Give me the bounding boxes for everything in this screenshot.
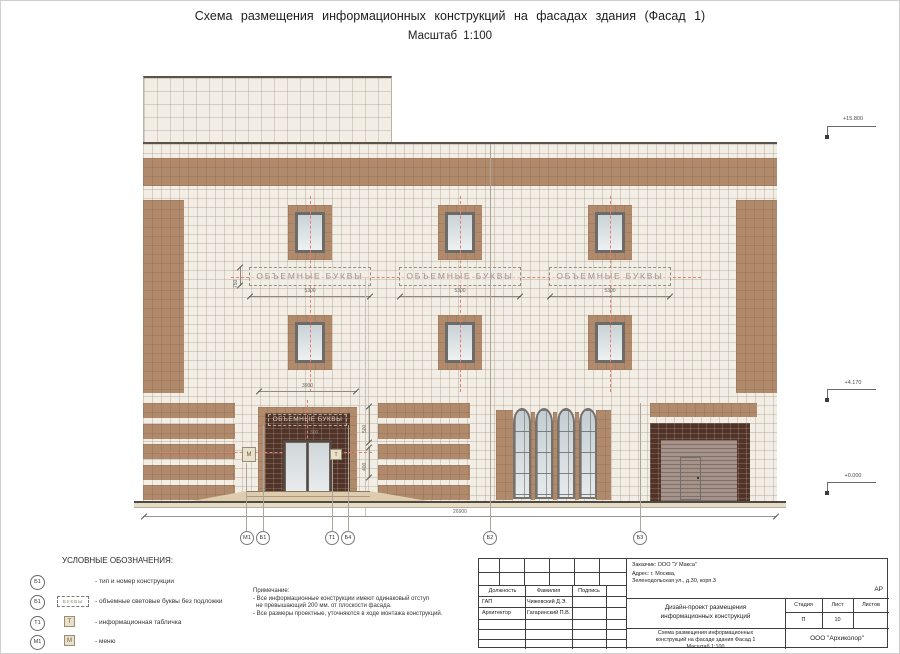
dimension-value: 5300	[399, 288, 521, 294]
pilaster-right	[736, 200, 777, 393]
menu-letter: М	[247, 452, 252, 458]
tb-col-role: Должность	[481, 588, 524, 594]
elevation-mark	[825, 135, 829, 139]
tb-address: Адрес: г. Москва,	[632, 571, 676, 577]
facade-stripe	[378, 465, 470, 480]
tb-subtitle: конструкций на фасаде здания Фасад 1	[626, 637, 785, 643]
sign-volume-letters: ОБЪЕМНЫЕ БУКВЫ	[549, 267, 671, 286]
tb-stage-label: Стадия	[785, 602, 822, 608]
sign-label: ОБЪЕМНЫЕ БУКВЫ	[273, 416, 343, 423]
dimension-value: 750	[233, 280, 239, 288]
notes-line: - Все информационные конструкции имеют о…	[253, 596, 429, 602]
dimension-value: 300	[310, 430, 318, 436]
arched-window	[513, 408, 531, 499]
notes-line: - Все размеры проектные, уточняются в хо…	[253, 611, 442, 617]
legend-text: - объемные световые буквы без подложки	[95, 598, 223, 605]
marker-leader	[332, 459, 333, 531]
dimension-line	[399, 296, 521, 297]
legend-text: - информационная табличка	[95, 619, 181, 626]
tb-project: информационных конструкций	[626, 613, 785, 620]
dimension-line	[240, 267, 241, 286]
tb-company: ООО "Архиколор"	[785, 635, 889, 642]
drawing-sheet: Схема размещения информационных конструк…	[0, 0, 900, 654]
dimension-value: 5300	[249, 288, 371, 294]
tb-sheets-label: Листов	[853, 602, 889, 608]
tb-code: АР	[839, 586, 883, 593]
step-line	[246, 496, 370, 497]
marker-leader	[348, 425, 349, 531]
legend-plaque-symbol: Т	[64, 616, 75, 627]
tb-stage-value: П	[785, 617, 822, 623]
legend-badge: Б1	[30, 595, 45, 610]
arch-pilaster	[596, 410, 611, 500]
marker-leader	[263, 425, 264, 531]
tb-name: Гагаринский П.В.	[527, 610, 570, 616]
marker-leader	[246, 463, 247, 531]
sheet-title: Схема размещения информационных конструк…	[0, 9, 900, 23]
ground-line-lower	[134, 507, 786, 508]
centerline	[310, 196, 311, 392]
legend-title: УСЛОВНЫЕ ОБОЗНАЧЕНИЯ:	[62, 556, 173, 565]
tb-name: Чижевский Д.Э.	[527, 599, 567, 605]
arched-window	[535, 408, 553, 499]
legend-text: - меню	[95, 638, 116, 645]
dimension-line	[249, 296, 371, 297]
door-leaf	[285, 442, 307, 497]
tb-address: Зеленодольская ул., д.30, корп.3	[632, 578, 716, 584]
arched-window	[579, 408, 597, 499]
facade-penthouse	[143, 76, 392, 142]
dimension-line	[369, 406, 370, 443]
facade-band	[143, 158, 777, 186]
sign-label: ОБЪЕМНЫЕ БУКВЫ	[556, 271, 663, 281]
ground-line	[134, 501, 786, 503]
facade-stripe	[143, 403, 235, 418]
legend-badge: Б1	[30, 575, 45, 590]
tb-subtitle: Масштаб 1:100	[626, 644, 785, 650]
sign-volume-letters: ОБЪЕМНЫЕ БУКВЫ	[399, 267, 521, 286]
marker-b3: Б3	[633, 531, 647, 545]
sign-label: ОБЪЕМНЫЕ БУКВЫ	[406, 271, 513, 281]
legend-badge: М1	[30, 635, 45, 650]
marker-m1: М1	[240, 531, 254, 545]
dimension-value: 5300	[549, 288, 671, 294]
facade-stripe	[378, 444, 470, 459]
plaque-letter: Т	[334, 452, 337, 458]
dimension-line	[369, 447, 370, 478]
dimension-line	[258, 391, 357, 392]
legend-badge: Т1	[30, 616, 45, 631]
facade-stripe	[143, 465, 235, 480]
dimension-line	[549, 296, 671, 297]
tb-customer: Заказчик: ООО "У Макса"	[632, 562, 697, 568]
tb-col-sign: Подпись	[573, 588, 605, 594]
dimension-value: 3900	[258, 383, 357, 389]
pilaster-left	[143, 200, 184, 393]
tb-role: Архитектор	[482, 610, 511, 616]
elevation-mark	[825, 491, 829, 495]
door-handle	[697, 477, 699, 479]
elevation-mark	[827, 482, 876, 483]
tb-project: Дизайн-проект размещения	[626, 604, 785, 611]
sign-label: ОБЪЕМНЫЕ БУКВЫ	[256, 271, 363, 281]
sign-volume-letters-entrance: ОБЪЕМНЫЕ БУКВЫ	[268, 414, 347, 426]
menu-sign: М	[242, 447, 256, 462]
elevation-mark	[827, 126, 876, 127]
garage-band	[650, 403, 757, 417]
legend-menu-symbol: М	[64, 635, 75, 646]
title-block: Должность Фамилия Подпись ГАП Чижевский …	[478, 558, 888, 648]
notes-line: не превышающий 200 мм. от плоскости фаса…	[256, 603, 392, 609]
marker-t1: Т1	[325, 531, 339, 545]
sheet-scale: Масштаб 1:100	[0, 30, 900, 42]
tb-sheet-label: Лист	[822, 602, 853, 608]
tb-col-name: Фамилия	[526, 588, 571, 594]
marker-b1: Б1	[256, 531, 270, 545]
legend-text: - тип и номер конструкции	[95, 578, 174, 585]
dimension-value: 500	[362, 425, 368, 433]
arched-window	[557, 408, 575, 499]
marker-leader	[640, 403, 641, 531]
elevation-value: +15.800	[830, 116, 876, 122]
dimension-value-total: 26900	[143, 509, 777, 515]
facade-stripe	[378, 403, 470, 418]
legend-letters-symbol: БУКВЫ	[57, 596, 89, 607]
tb-subtitle: Схема размещения информационных	[626, 630, 785, 636]
door-leaf	[308, 442, 330, 497]
elevation-value: +0.000	[830, 473, 876, 479]
marker-b2: Б2	[483, 531, 497, 545]
tb-sheet-value: 10	[822, 617, 853, 623]
elevation-mark	[827, 389, 876, 390]
dimension-value: 400	[362, 463, 368, 471]
dimension-line-total	[143, 516, 777, 517]
notes-title: Примечание:	[253, 588, 289, 594]
facade-stripe	[378, 424, 470, 439]
marker-leader	[490, 144, 491, 531]
centerline	[610, 196, 611, 392]
tb-role: ГАП	[482, 599, 492, 605]
marker-b4: Б4	[341, 531, 355, 545]
arch-pilaster	[496, 410, 513, 500]
centerline	[460, 196, 461, 392]
facade-stripe	[143, 424, 235, 439]
elevation-mark	[825, 398, 829, 402]
elevation-value: +4.170	[830, 380, 876, 386]
sign-volume-letters: ОБЪЕМНЫЕ БУКВЫ	[249, 267, 371, 286]
